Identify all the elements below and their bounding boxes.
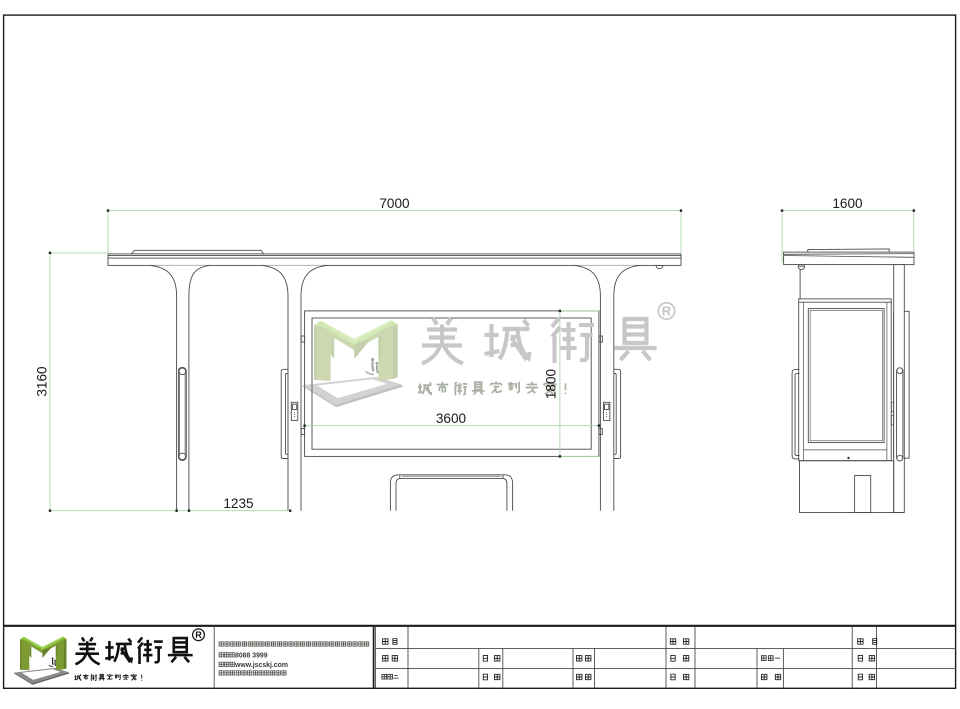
svg-text:1600: 1600 [832, 196, 863, 211]
svg-text:3600: 3600 [436, 411, 467, 426]
svg-text:1800: 1800 [544, 368, 559, 399]
svg-text:www.jscskj.com: www.jscskj.com [234, 662, 288, 669]
svg-text:R: R [662, 304, 672, 319]
svg-text:1235: 1235 [223, 496, 253, 511]
svg-text:R: R [195, 630, 202, 640]
svg-text:8088 3999: 8088 3999 [235, 652, 268, 659]
svg-text:3160: 3160 [35, 366, 50, 397]
svg-text:7000: 7000 [379, 196, 410, 211]
